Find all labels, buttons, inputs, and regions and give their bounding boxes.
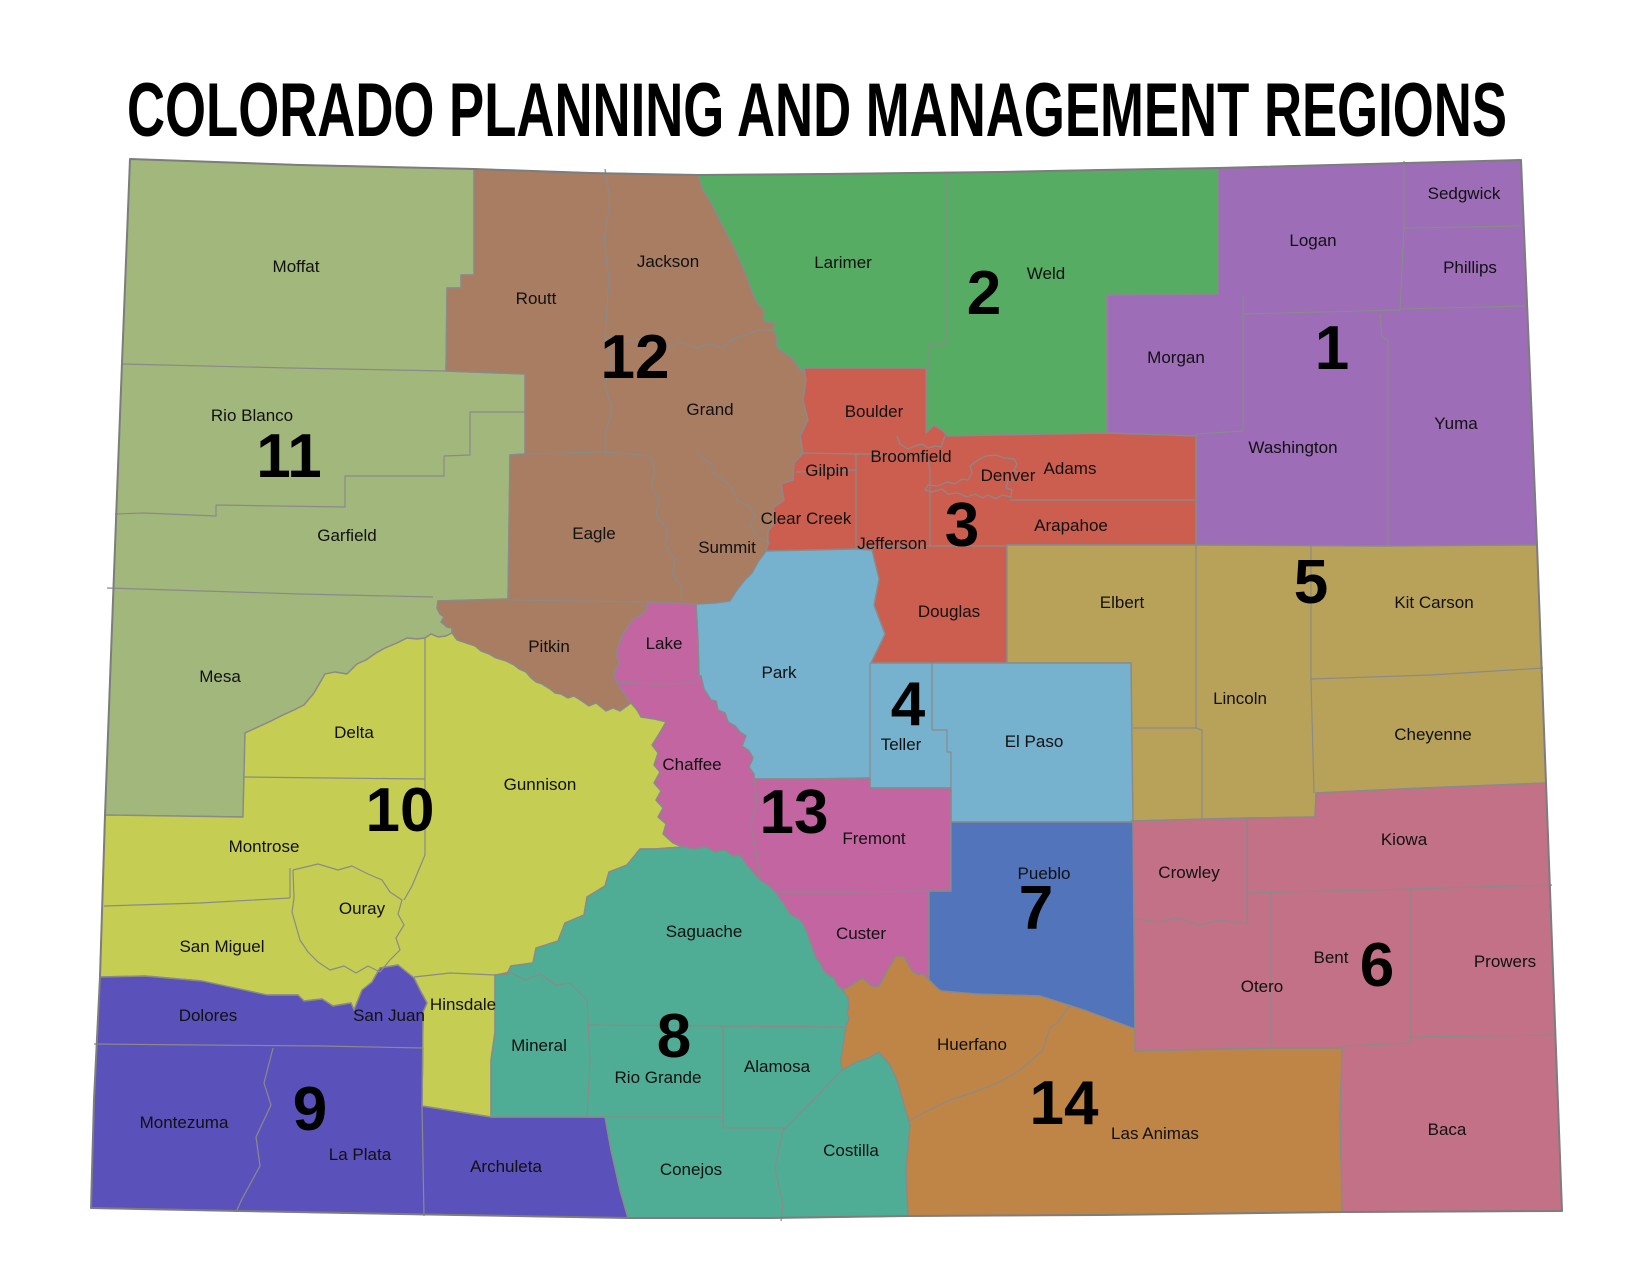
svg-text:Clear Creek: Clear Creek (761, 509, 852, 528)
svg-text:Boulder: Boulder (845, 402, 904, 421)
svg-text:2: 2 (967, 259, 1001, 328)
svg-text:Summit: Summit (698, 538, 756, 557)
svg-text:Routt: Routt (516, 289, 557, 308)
svg-text:Garfield: Garfield (317, 526, 377, 545)
svg-text:Sedgwick: Sedgwick (1428, 184, 1501, 203)
svg-text:Fremont: Fremont (842, 829, 906, 848)
svg-text:Gilpin: Gilpin (805, 461, 848, 480)
svg-text:Gunnison: Gunnison (504, 775, 577, 794)
svg-text:Moffat: Moffat (273, 257, 320, 276)
svg-text:Kit Carson: Kit Carson (1394, 593, 1473, 612)
svg-text:Ouray: Ouray (339, 899, 386, 918)
svg-text:Las Animas: Las Animas (1111, 1124, 1199, 1143)
svg-text:Pitkin: Pitkin (528, 637, 570, 656)
svg-text:Costilla: Costilla (823, 1141, 879, 1160)
svg-text:Prowers: Prowers (1474, 952, 1536, 971)
svg-text:Dolores: Dolores (179, 1006, 238, 1025)
svg-text:11: 11 (256, 422, 322, 491)
svg-text:Chaffee: Chaffee (662, 755, 721, 774)
svg-text:9: 9 (293, 1075, 327, 1144)
svg-text:Lincoln: Lincoln (1213, 689, 1267, 708)
svg-text:Larimer: Larimer (814, 253, 872, 272)
svg-text:La Plata: La Plata (329, 1145, 392, 1164)
svg-text:Conejos: Conejos (660, 1160, 722, 1179)
svg-text:Custer: Custer (836, 924, 886, 943)
svg-text:Archuleta: Archuleta (470, 1157, 542, 1176)
svg-text:Phillips: Phillips (1443, 258, 1497, 277)
svg-text:Crowley: Crowley (1158, 863, 1220, 882)
svg-text:Kiowa: Kiowa (1381, 830, 1428, 849)
svg-text:4: 4 (891, 670, 926, 739)
svg-text:San Juan: San Juan (353, 1006, 425, 1025)
svg-text:El Paso: El Paso (1005, 732, 1064, 751)
svg-text:Logan: Logan (1289, 231, 1336, 250)
svg-text:8: 8 (657, 1002, 691, 1071)
svg-text:Hinsdale: Hinsdale (430, 995, 496, 1014)
svg-text:Delta: Delta (334, 723, 374, 742)
svg-text:Jefferson: Jefferson (857, 534, 927, 553)
svg-text:Lake: Lake (646, 634, 683, 653)
svg-text:Broomfield: Broomfield (870, 447, 951, 466)
svg-text:Bent: Bent (1314, 948, 1349, 967)
svg-text:San Miguel: San Miguel (179, 937, 264, 956)
svg-text:Alamosa: Alamosa (744, 1057, 811, 1076)
svg-text:Denver: Denver (981, 466, 1036, 485)
svg-text:Morgan: Morgan (1147, 348, 1205, 367)
svg-text:Saguache: Saguache (666, 922, 743, 941)
svg-text:Park: Park (762, 663, 797, 682)
svg-text:Elbert: Elbert (1100, 593, 1145, 612)
svg-text:Cheyenne: Cheyenne (1394, 725, 1472, 744)
svg-text:Adams: Adams (1044, 459, 1097, 478)
svg-text:Douglas: Douglas (918, 602, 980, 621)
svg-text:Huerfano: Huerfano (937, 1035, 1007, 1054)
svg-text:7: 7 (1019, 874, 1053, 943)
svg-text:13: 13 (760, 778, 829, 847)
svg-text:Montezuma: Montezuma (140, 1113, 229, 1132)
svg-text:Weld: Weld (1027, 264, 1065, 283)
svg-text:3: 3 (945, 491, 979, 560)
svg-text:Arapahoe: Arapahoe (1034, 516, 1108, 535)
svg-text:Mesa: Mesa (199, 667, 241, 686)
svg-text:Otero: Otero (1241, 977, 1284, 996)
svg-text:1: 1 (1315, 314, 1349, 383)
svg-text:Yuma: Yuma (1434, 414, 1478, 433)
svg-text:Eagle: Eagle (572, 524, 615, 543)
svg-text:10: 10 (366, 776, 435, 845)
svg-text:Grand: Grand (686, 400, 733, 419)
svg-text:12: 12 (601, 323, 670, 392)
svg-text:Mineral: Mineral (511, 1036, 567, 1055)
svg-text:COLORADO PLANNING AND MANAGEME: COLORADO PLANNING AND MANAGEMENT REGIONS (127, 68, 1507, 153)
svg-text:Washington: Washington (1248, 438, 1337, 457)
svg-text:Jackson: Jackson (637, 252, 699, 271)
svg-text:Baca: Baca (1428, 1120, 1467, 1139)
svg-text:6: 6 (1360, 931, 1394, 1000)
svg-text:14: 14 (1030, 1069, 1099, 1138)
svg-text:Montrose: Montrose (229, 837, 300, 856)
svg-text:5: 5 (1294, 548, 1328, 617)
